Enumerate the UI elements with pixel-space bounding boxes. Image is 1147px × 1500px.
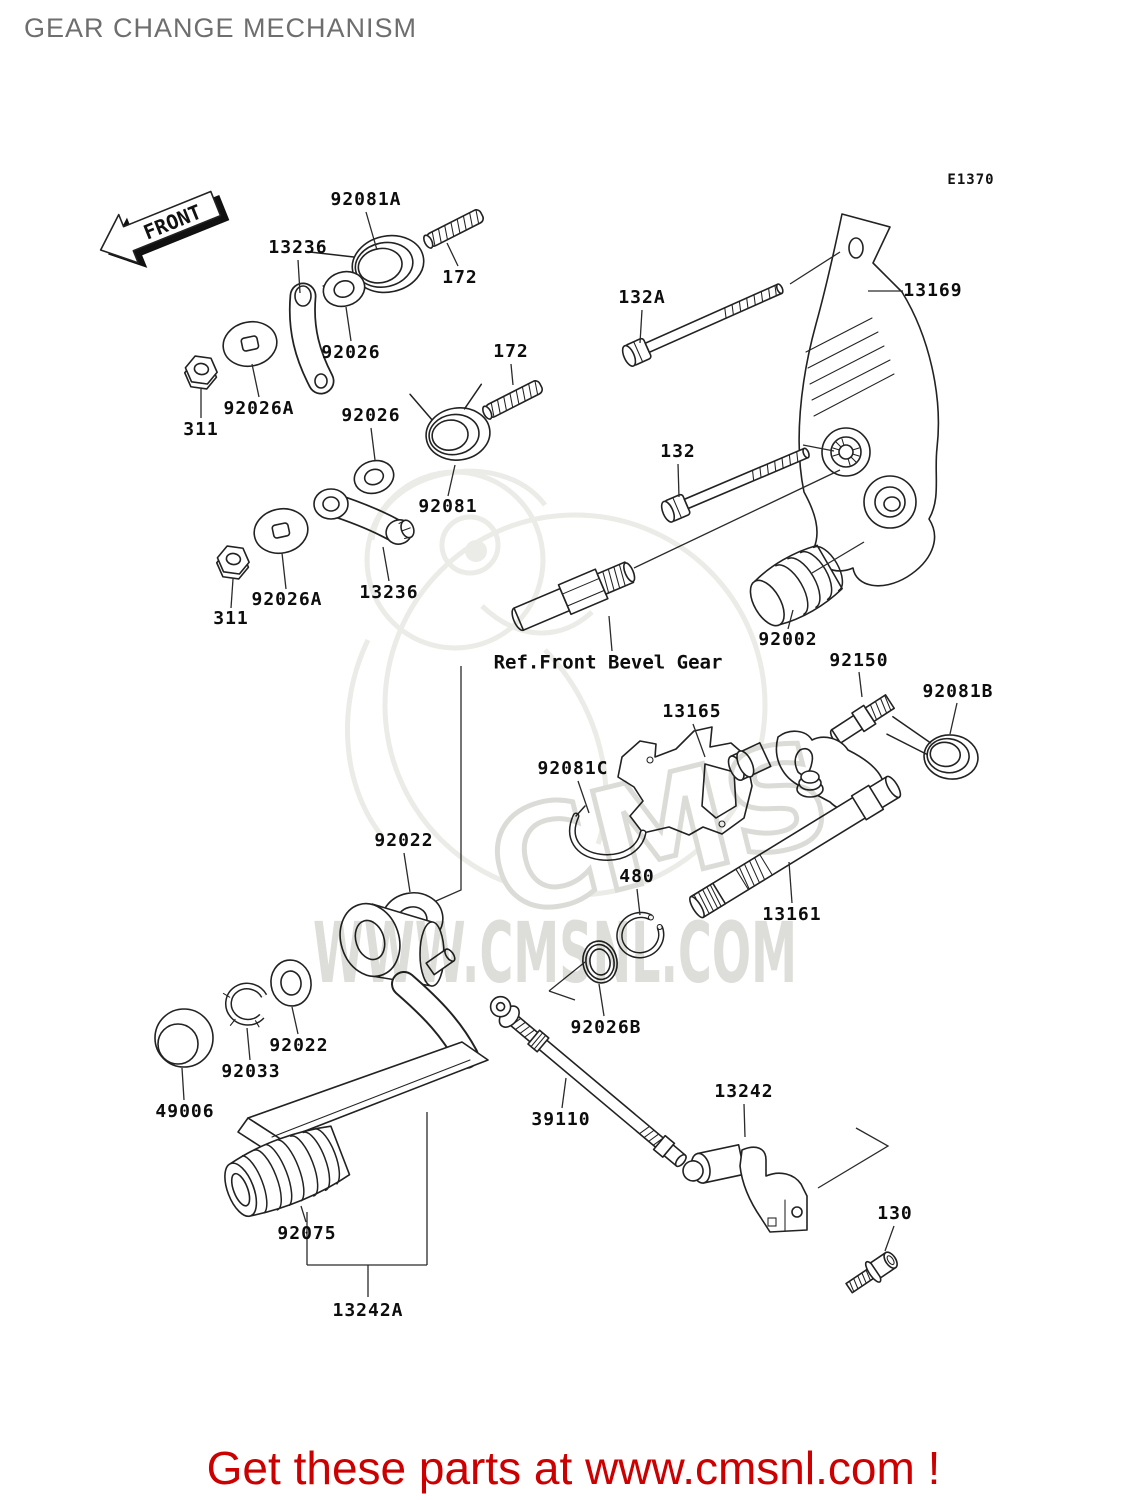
part-label-92033: 92033 xyxy=(221,1063,280,1081)
part-label-92075: 92075 xyxy=(277,1225,336,1243)
part-label-132: 132 xyxy=(660,443,696,461)
part-label-92002: 92002 xyxy=(758,631,817,649)
spring-92081b-drawing xyxy=(883,716,981,781)
stud-172-2-drawing xyxy=(481,379,544,420)
part-label-92026A: 92026A xyxy=(223,400,294,418)
part-label-92081: 92081 xyxy=(418,498,477,516)
watermark-url: WWW.CMSNL.COM xyxy=(313,904,797,1002)
part-label-92150: 92150 xyxy=(829,652,888,670)
eclip-92033-drawing xyxy=(216,980,269,1033)
washer-92026a-2-drawing xyxy=(250,504,312,558)
part-label-13169: 13169 xyxy=(903,282,962,300)
part-label-39110: 39110 xyxy=(531,1111,590,1129)
part-label-92081B: 92081B xyxy=(922,683,993,701)
lever-13236-2-drawing xyxy=(314,489,417,548)
nut-311-2-drawing xyxy=(215,545,251,580)
stud-172-top-drawing xyxy=(422,208,485,249)
washer-92026-2-drawing xyxy=(350,456,398,499)
part-label-311: 311 xyxy=(183,421,219,439)
part-label-172: 172 xyxy=(442,269,478,287)
parts-diagram-page: GEAR CHANGE MECHANISM E1370 FRONT xyxy=(0,0,1147,1500)
washer-92026a-1-drawing xyxy=(219,317,281,371)
arm-13242-drawing xyxy=(680,1145,807,1232)
ref-note: Ref.Front Bevel Gear xyxy=(494,654,723,673)
part-label-130: 130 xyxy=(877,1205,913,1223)
part-label-13242A: 13242A xyxy=(332,1302,403,1320)
part-label-92026B: 92026B xyxy=(570,1019,641,1037)
part-label-480: 480 xyxy=(619,868,655,886)
part-label-13242: 13242 xyxy=(714,1083,773,1101)
part-label-92026A: 92026A xyxy=(251,591,322,609)
cap-49006-drawing xyxy=(155,1009,213,1067)
part-label-13236: 13236 xyxy=(359,584,418,602)
part-label-132A: 132A xyxy=(618,289,665,307)
part-label-92022: 92022 xyxy=(269,1037,328,1055)
bracket-13169-drawing xyxy=(799,214,938,586)
part-label-13236: 13236 xyxy=(268,239,327,257)
front-arrow: FRONT xyxy=(91,177,234,280)
footer-promo: Get these parts at www.cmsnl.com ! xyxy=(0,1441,1147,1495)
nut-311-1-drawing xyxy=(183,355,219,390)
part-label-92026: 92026 xyxy=(341,407,400,425)
part-label-92022: 92022 xyxy=(374,832,433,850)
part-label-172: 172 xyxy=(493,343,529,361)
bolt-130-drawing xyxy=(842,1247,901,1298)
washer-92022-lower-drawing xyxy=(268,957,314,1008)
part-label-92081C: 92081C xyxy=(537,760,608,778)
part-label-92081A: 92081A xyxy=(330,191,401,209)
part-label-311: 311 xyxy=(213,610,249,628)
spring-92081-drawing xyxy=(410,384,493,466)
part-label-13165: 13165 xyxy=(662,703,721,721)
diagram-drawing: FRONT xyxy=(0,0,1147,1500)
part-label-49006: 49006 xyxy=(155,1103,214,1121)
part-label-13161: 13161 xyxy=(762,906,821,924)
part-label-92026: 92026 xyxy=(321,344,380,362)
lever-13236-top-drawing xyxy=(295,286,327,388)
